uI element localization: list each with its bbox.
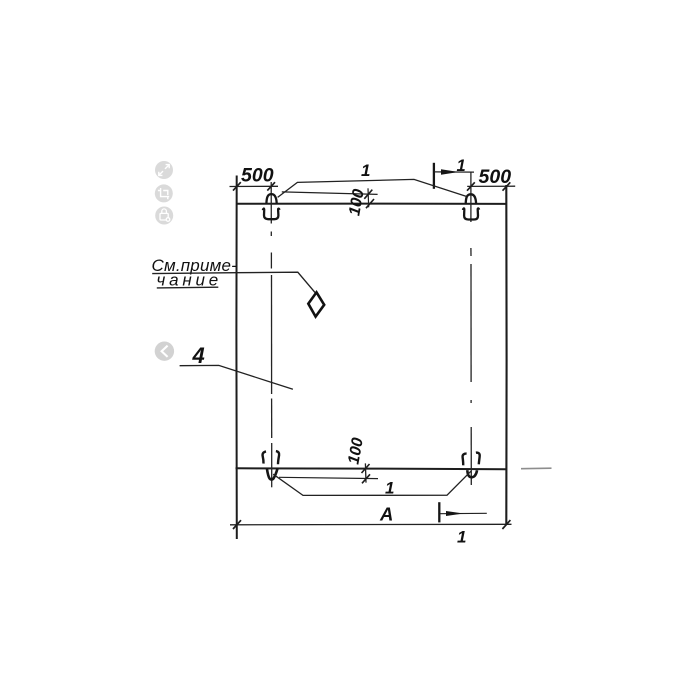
svg-text:500: 500: [241, 165, 274, 187]
svg-text:1: 1: [385, 479, 394, 498]
svg-text:500: 500: [479, 166, 512, 188]
svg-text:4: 4: [192, 343, 205, 368]
svg-text:1: 1: [457, 528, 466, 547]
svg-text:1: 1: [457, 157, 466, 175]
svg-text:1: 1: [361, 161, 370, 180]
svg-text:А: А: [379, 504, 393, 525]
